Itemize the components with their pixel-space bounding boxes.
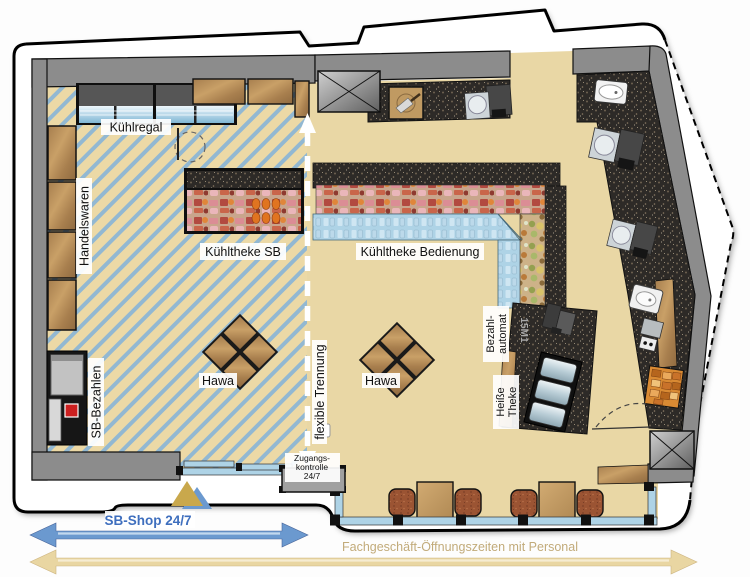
chair	[511, 490, 537, 517]
chair	[577, 490, 603, 517]
bread-display	[645, 366, 684, 408]
label-kuehltheke-bedienung: Kühltheke Bedienung	[361, 245, 480, 259]
label-kuehltheke-sb: Kühltheke SB	[205, 245, 281, 259]
prep-counter-top	[368, 80, 512, 122]
label-flexible-trennung: flexible Trennung	[313, 344, 327, 439]
wood-sill-bottom-right	[598, 465, 648, 484]
chair	[455, 489, 481, 516]
label-heisse-theke-2: Theke	[507, 387, 519, 418]
fachgeschaeft-zone-arrow: Fachgeschäft-Öffnungszeiten mit Personal	[30, 540, 697, 574]
label-bezahlautomat-1: Bezahl-	[485, 315, 497, 353]
handelswaren-shelves	[48, 126, 76, 330]
label-sb-shop: SB-Shop 24/7	[104, 513, 191, 528]
shaft-bottom	[650, 431, 694, 469]
kiosk-red-button	[65, 404, 78, 417]
dining-table	[417, 482, 453, 519]
sb-checkout-kiosk	[47, 351, 87, 445]
label-hawa-right: Hawa	[365, 374, 397, 388]
floor-plan: 15M1	[0, 0, 750, 577]
label-hawa-left: Hawa	[202, 374, 234, 388]
wall-bottom-left	[32, 452, 180, 480]
label-fachgeschaeft: Fachgeschäft-Öffnungszeiten mit Personal	[342, 540, 578, 554]
counter-code-label: 15M1	[518, 317, 529, 342]
dining-table	[539, 482, 575, 519]
wall-left	[32, 59, 47, 480]
label-kuehlregal: Kühlregal	[110, 121, 163, 135]
wall-top-right	[573, 46, 653, 74]
sink-top	[594, 79, 628, 104]
shaft-top	[318, 71, 380, 112]
label-sb-bezahlen: SB-Bezahlen	[90, 365, 104, 438]
floor-plan-page: 15M1	[0, 0, 750, 577]
kuehltheke-sb-counter	[184, 168, 304, 234]
sliding-door-leaf	[184, 461, 234, 467]
sb-shop-zone-arrow: SB-Shop 24/7	[30, 511, 308, 547]
label-zugangskontrolle-3: 24/7	[304, 471, 321, 481]
label-handelswaren: Handelswaren	[78, 186, 92, 266]
label-heisse-theke-1: Heiße	[495, 387, 507, 416]
label-bezahlautomat-2: automat	[497, 314, 509, 354]
chair	[389, 489, 415, 516]
